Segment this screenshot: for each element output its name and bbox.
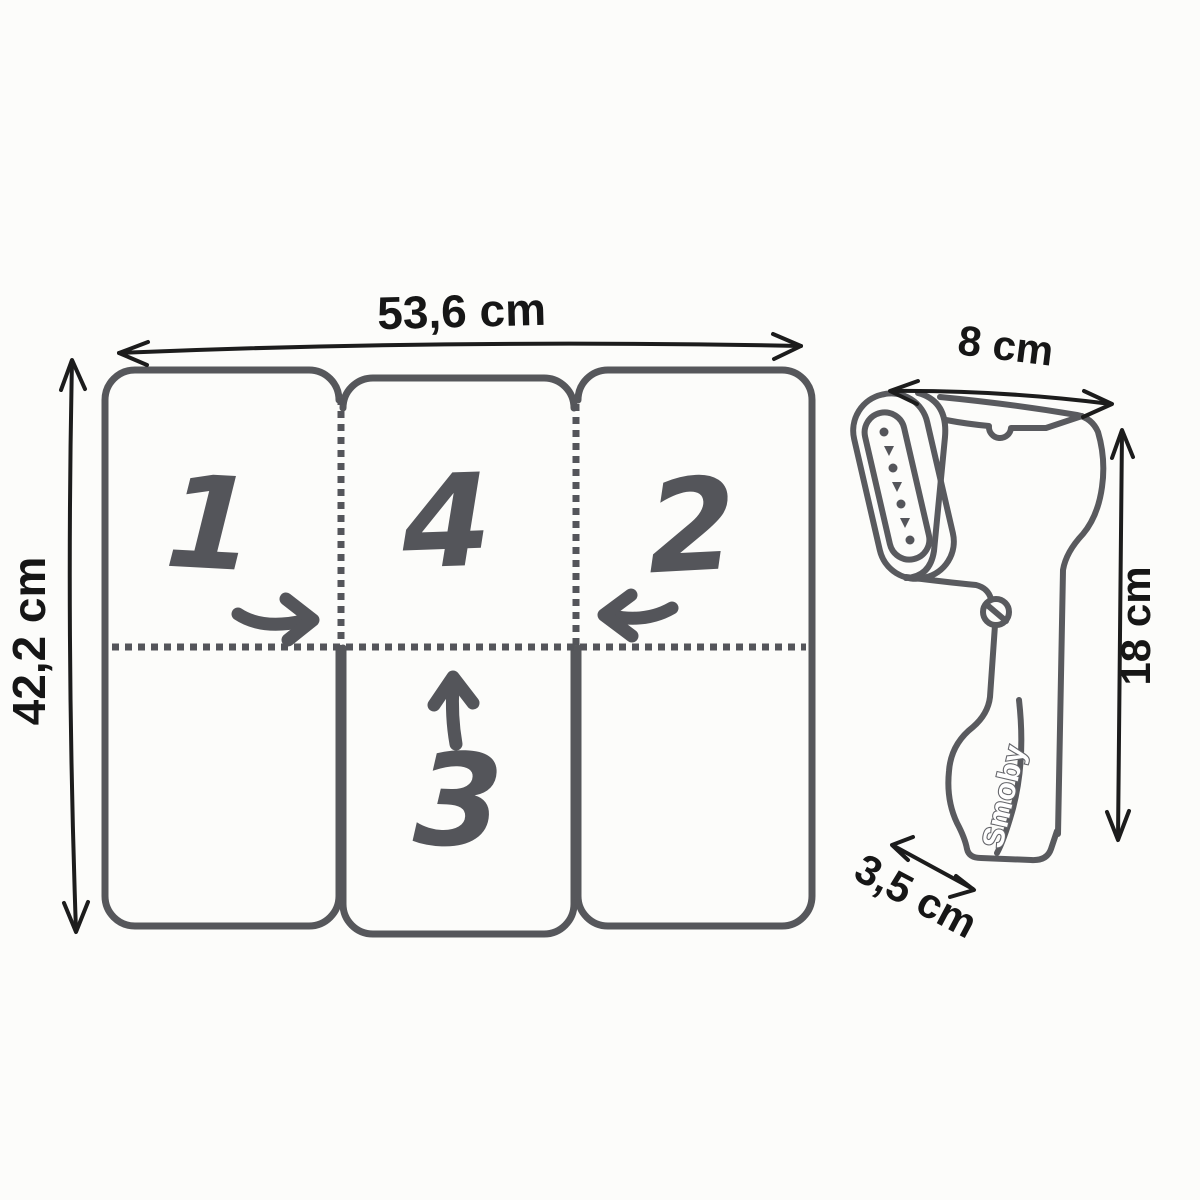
brand-logo: Smoby <box>977 741 1033 851</box>
board-width-label: 53,6 cm <box>377 283 547 339</box>
board-width-arrow <box>119 334 801 365</box>
steamer-width-label: 8 cm <box>955 316 1056 374</box>
panel-2-number: 2 <box>643 450 740 603</box>
dimension-diagram: 1 4 2 3 <box>0 0 1200 1200</box>
panel-4-number: 4 <box>398 447 493 599</box>
board-height-arrow <box>61 360 88 932</box>
folding-board: 1 4 2 3 <box>105 370 812 934</box>
fold-arrow-panel-1-right <box>238 599 313 640</box>
steamer: Smoby <box>846 386 1104 860</box>
board-height-label: 42,2 cm <box>3 557 55 726</box>
diagram-canvas: 1 4 2 3 <box>0 0 1200 1200</box>
steamer-underside <box>906 577 991 599</box>
steamer-dimensions: 8 cm 18 cm 3,5 cm <box>847 316 1159 947</box>
steamer-button-slot <box>986 604 1006 621</box>
steamer-top-band <box>946 416 1082 438</box>
panel-1-number: 1 <box>162 448 259 601</box>
steamer-height-label: 18 cm <box>1112 566 1159 685</box>
